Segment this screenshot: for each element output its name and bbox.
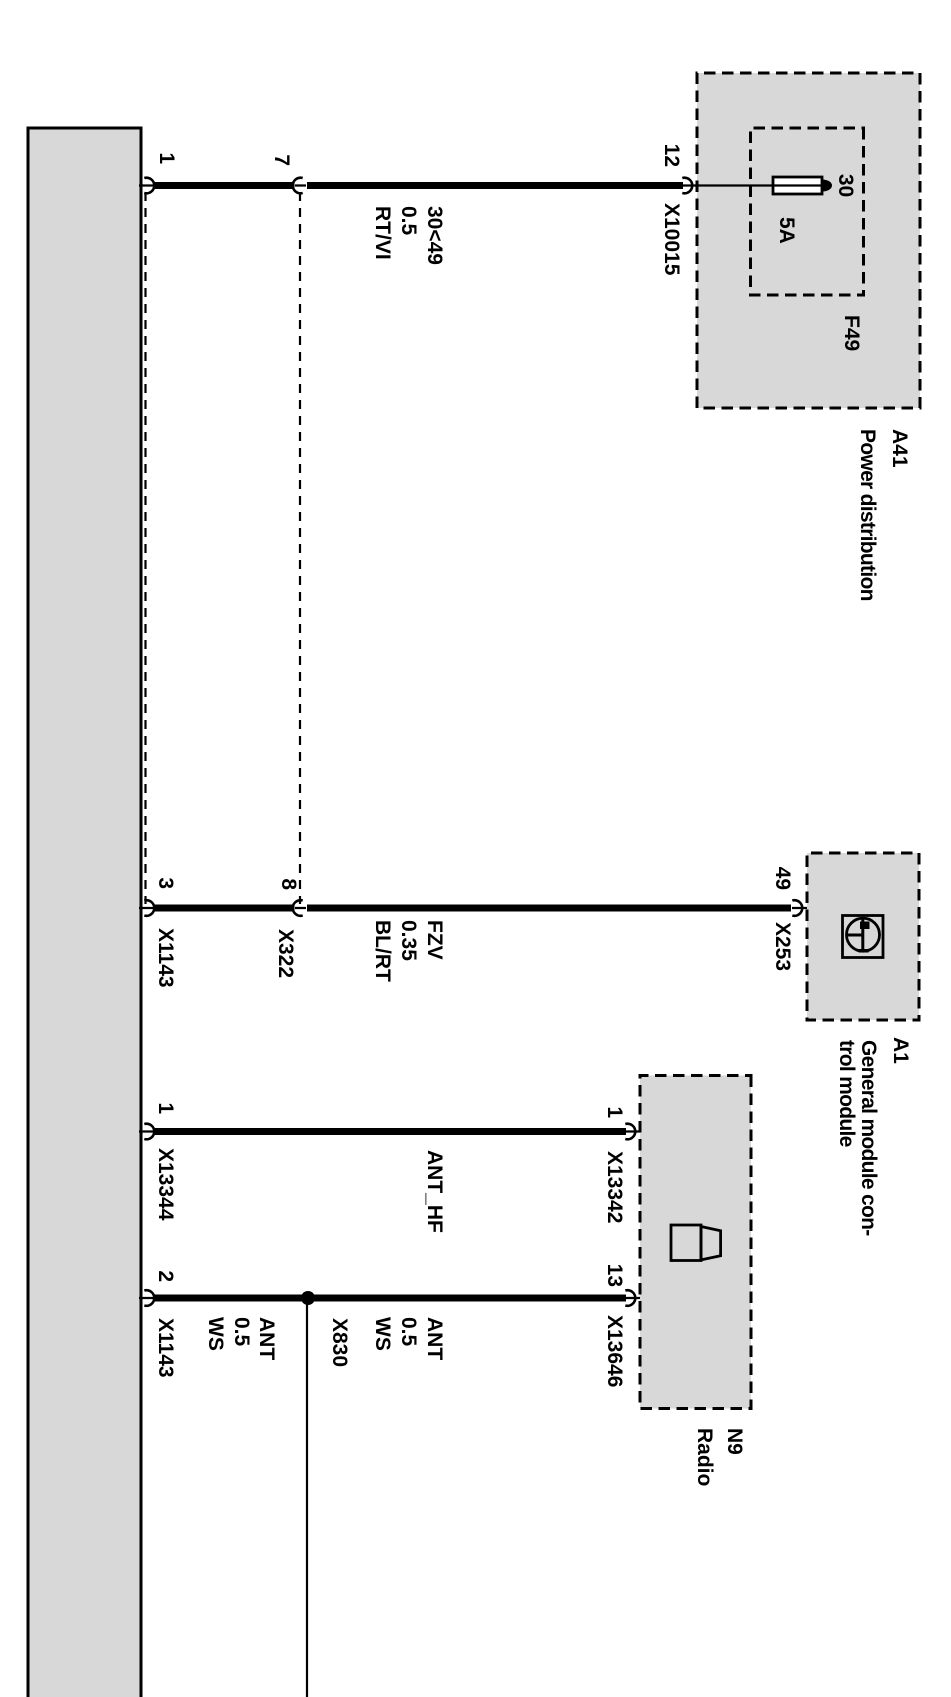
svg-text:BL/RT: BL/RT <box>371 920 394 982</box>
svg-text:X13342: X13342 <box>603 1151 626 1223</box>
svg-text:1: 1 <box>603 1106 626 1118</box>
svg-text:30<49: 30<49 <box>423 206 446 265</box>
svg-text:X830: X830 <box>328 1318 351 1367</box>
svg-text:General module con-: General module con- <box>857 1040 880 1236</box>
svg-text:0.5: 0.5 <box>397 206 420 236</box>
svg-text:X13646: X13646 <box>603 1315 626 1387</box>
svg-text:X322: X322 <box>274 929 297 978</box>
svg-text:X253: X253 <box>771 922 794 971</box>
svg-text:30: 30 <box>834 174 857 197</box>
svg-text:FZV: FZV <box>423 920 446 960</box>
svg-text:A41: A41 <box>888 429 911 468</box>
svg-text:13: 13 <box>603 1264 626 1287</box>
svg-text:X13344: X13344 <box>154 1148 177 1221</box>
svg-text:ANT: ANT <box>255 1317 278 1360</box>
svg-text:Radio: Radio <box>693 1428 716 1486</box>
svg-text:X1143: X1143 <box>154 928 177 988</box>
svg-text:3: 3 <box>154 877 177 889</box>
svg-text:X1143: X1143 <box>154 1318 177 1378</box>
svg-text:1: 1 <box>154 1102 177 1114</box>
svg-text:X10015: X10015 <box>660 203 683 276</box>
svg-text:WS: WS <box>204 1317 227 1351</box>
svg-text:7: 7 <box>270 154 293 166</box>
svg-text:8: 8 <box>277 878 300 890</box>
svg-text:2: 2 <box>154 1270 177 1282</box>
svg-text:RT/VI: RT/VI <box>371 206 394 260</box>
svg-text:ANT: ANT <box>423 1317 446 1360</box>
svg-text:trol module: trol module <box>835 1040 858 1147</box>
svg-text:A1: A1 <box>889 1037 912 1064</box>
svg-text:49: 49 <box>771 867 794 890</box>
svg-text:WS: WS <box>371 1317 394 1351</box>
svg-text:F49: F49 <box>840 315 863 351</box>
svg-text:Power distribution: Power distribution <box>856 429 879 601</box>
svg-text:0.5: 0.5 <box>397 1317 420 1347</box>
svg-text:ANT_HF: ANT_HF <box>423 1150 446 1233</box>
svg-text:1: 1 <box>155 152 178 164</box>
svg-text:12: 12 <box>660 144 683 167</box>
svg-text:0.35: 0.35 <box>397 920 420 961</box>
svg-text:5A: 5A <box>775 217 798 244</box>
svg-text:0.5: 0.5 <box>230 1317 253 1347</box>
svg-text:N9: N9 <box>723 1428 746 1455</box>
